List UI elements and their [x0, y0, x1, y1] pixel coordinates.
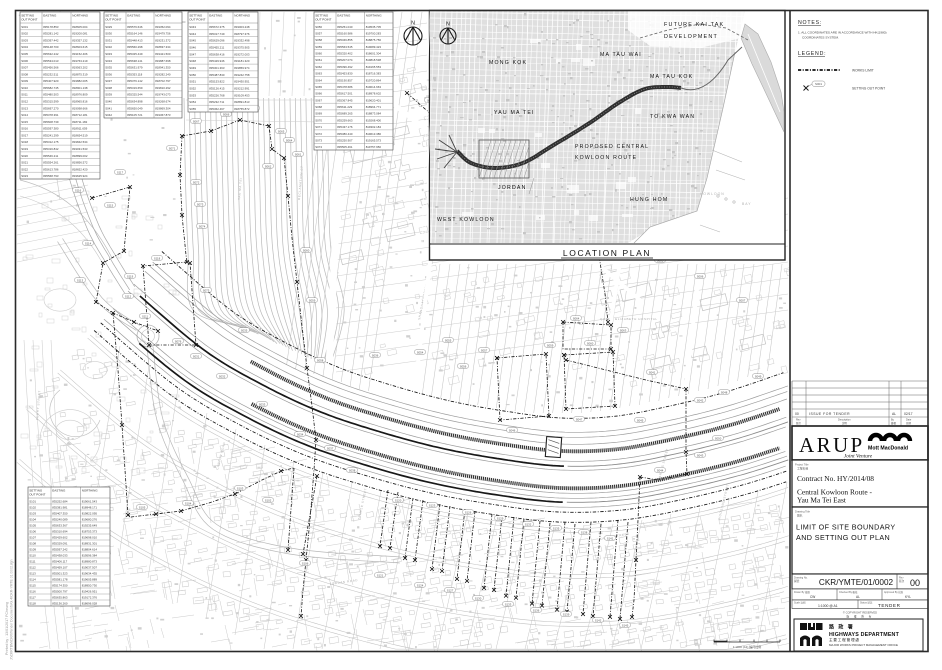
svg-text:COORDINATES SYSTEM.: COORDINATES SYSTEM.: [802, 36, 839, 40]
svg-text:S050: S050: [715, 436, 722, 440]
svg-text:1:1000 (A1) 縮尺比例: 1:1000 (A1) 縮尺比例: [733, 644, 762, 649]
svg-text:819680.276: 819680.276: [82, 517, 98, 521]
svg-text:819357.132: 819357.132: [72, 38, 88, 42]
svg-text:S007: S007: [21, 66, 28, 70]
svg-text:S044: S044: [657, 468, 664, 472]
svg-text:S136: S136: [533, 608, 540, 612]
svg-text:PROPOSED CENTRAL: PROPOSED CENTRAL: [575, 144, 649, 150]
svg-text:S126: S126: [465, 510, 472, 514]
svg-text:版次: 版次: [899, 579, 905, 583]
svg-text:835597.380: 835597.380: [43, 127, 59, 131]
svg-text:JORDAN: JORDAN: [498, 185, 527, 191]
svg-text:S049: S049: [189, 66, 196, 70]
svg-text:818901.138: 818901.138: [72, 86, 88, 90]
svg-text:S036: S036: [105, 72, 112, 76]
svg-text:圖號: 圖號: [794, 579, 800, 583]
svg-text:835438.033: 835438.033: [52, 553, 68, 557]
svg-text:S124: S124: [417, 583, 424, 587]
svg-text:819212.991: 819212.991: [234, 87, 250, 91]
svg-text:S035: S035: [105, 66, 112, 70]
svg-text:818899.002: 818899.002: [72, 154, 88, 158]
svg-text:819268.400: 819268.400: [366, 118, 382, 122]
svg-text:835632.242: 835632.242: [43, 52, 59, 56]
svg-text:S006: S006: [21, 59, 28, 63]
svg-text:S009: S009: [21, 79, 28, 83]
svg-text:S015: S015: [21, 120, 28, 124]
svg-text:835329.091: 835329.091: [52, 541, 68, 545]
svg-text:S135: S135: [553, 526, 560, 530]
svg-text:835250.907: 835250.907: [337, 138, 353, 142]
svg-text:S037: S037: [105, 79, 112, 83]
svg-text:S013: S013: [21, 106, 28, 110]
svg-text:S053: S053: [189, 93, 196, 97]
svg-text:S006: S006: [697, 274, 704, 278]
svg-text:S115: S115: [29, 583, 36, 587]
svg-text:S120: S120: [395, 498, 402, 502]
svg-text:OUT POINT: OUT POINT: [29, 493, 45, 497]
svg-text:835500.797: 835500.797: [52, 589, 68, 593]
svg-text:S048: S048: [189, 59, 196, 63]
svg-text:835301.363: 835301.363: [209, 66, 225, 70]
svg-text:835638.141: 835638.141: [127, 59, 143, 63]
svg-text:S020: S020: [21, 154, 28, 158]
svg-text:835353.118: 835353.118: [127, 72, 142, 76]
svg-text:819810.292: 819810.292: [155, 86, 171, 90]
svg-text:835501.323: 835501.323: [52, 571, 68, 575]
svg-text:819272.003: 819272.003: [234, 52, 250, 56]
svg-text:Mott MacDonald: Mott MacDonald: [868, 446, 908, 452]
svg-text:CW: CW: [810, 595, 815, 599]
svg-text:S054: S054: [189, 100, 196, 104]
svg-text:N: N: [446, 22, 450, 28]
svg-text:S060: S060: [587, 341, 594, 345]
svg-text:S072: S072: [315, 132, 322, 136]
svg-text:DEVELOPMENT: DEVELOPMENT: [664, 34, 718, 40]
svg-text:S032: S032: [105, 45, 112, 49]
svg-text:S115: S115: [107, 203, 114, 207]
svg-text:S057: S057: [315, 32, 322, 36]
svg-text:835505.461: 835505.461: [337, 145, 353, 149]
svg-text:S066: S066: [315, 92, 322, 96]
svg-text:818755.872: 818755.872: [234, 107, 250, 111]
svg-text:819625.924: 819625.924: [72, 174, 88, 178]
svg-text:S061: S061: [315, 58, 322, 62]
svg-text:S112: S112: [29, 565, 36, 569]
svg-text:819332.498: 819332.498: [234, 39, 250, 43]
svg-text:819375.905: 819375.905: [234, 46, 250, 50]
svg-text:S067: S067: [193, 119, 200, 123]
svg-text:818804.614: 818804.614: [82, 547, 98, 551]
svg-text:835563.545: 835563.545: [337, 45, 353, 49]
svg-text:S116: S116: [75, 188, 82, 192]
svg-text:835689.265: 835689.265: [337, 112, 353, 116]
svg-text:835456.566: 835456.566: [43, 66, 59, 70]
svg-text:S010: S010: [21, 86, 28, 90]
svg-text:835315.599: 835315.599: [43, 100, 59, 104]
svg-text:Checked By 覆核: Checked By 覆核: [839, 590, 858, 594]
svg-text:日期: 日期: [906, 421, 912, 425]
svg-text:835554.261: 835554.261: [43, 161, 59, 165]
svg-text:NORTHING: NORTHING: [234, 13, 251, 17]
svg-text:版 權 所 有: 版 權 所 有: [847, 615, 874, 619]
svg-text:819596.384: 819596.384: [82, 553, 98, 557]
svg-text:CKR/YMTE/01/0002: CKR/YMTE/01/0002: [819, 578, 894, 587]
svg-text:819698.010: 819698.010: [82, 535, 98, 539]
svg-text:S001: S001: [21, 25, 28, 29]
svg-text:S066: S066: [223, 112, 230, 116]
svg-text:819109.453: 819109.453: [234, 93, 250, 97]
svg-text:818911.659: 818911.659: [72, 127, 87, 131]
svg-text:SETTING OUT POINT: SETTING OUT POINT: [852, 87, 885, 91]
svg-text:835259.663: 835259.663: [337, 118, 353, 122]
svg-text:819842.534: 819842.534: [72, 140, 88, 144]
svg-text:835650.049: 835650.049: [127, 106, 143, 110]
svg-text:835190.857: 835190.857: [337, 78, 353, 82]
svg-text:835631.979: 835631.979: [127, 66, 143, 70]
svg-text:819098.666: 819098.666: [72, 106, 88, 110]
svg-text:S065: S065: [278, 129, 285, 133]
svg-text:AND SETTING OUT PLAN: AND SETTING OUT PLAN: [796, 533, 890, 542]
svg-text:S063: S063: [315, 72, 322, 76]
svg-text:主要工程管理處: 主要工程管理處: [829, 637, 860, 642]
svg-text:S056: S056: [315, 25, 322, 29]
svg-text:S041: S041: [105, 106, 112, 110]
svg-text:NOTES:: NOTES:: [798, 20, 822, 26]
svg-text:AL: AL: [892, 412, 896, 416]
svg-text:S075: S075: [203, 288, 210, 292]
svg-text:S052: S052: [189, 87, 196, 91]
svg-text:S114: S114: [85, 241, 92, 245]
svg-text:818601.304: 818601.304: [366, 52, 382, 56]
svg-text:835325.449: 835325.449: [127, 52, 143, 56]
svg-text:S103: S103: [237, 486, 244, 490]
svg-text:S031: S031: [193, 354, 200, 358]
svg-text:LOCATION PLAN: LOCATION PLAN: [563, 248, 651, 258]
svg-text:835635.863: 835635.863: [52, 595, 68, 599]
svg-text:S019: S019: [21, 147, 28, 151]
svg-text:835633.367: 835633.367: [52, 523, 68, 527]
svg-text:S114: S114: [29, 577, 36, 581]
svg-text:835437.176: 835437.176: [337, 125, 353, 129]
svg-text:EASTING: EASTING: [43, 13, 57, 17]
svg-text:S016: S016: [21, 127, 28, 131]
svg-text:835611.229: 835611.229: [337, 105, 352, 109]
svg-text:S046: S046: [189, 46, 196, 50]
svg-text:MA TAU WAI: MA TAU WAI: [600, 52, 642, 58]
svg-text:835534.013: 835534.013: [43, 59, 59, 63]
svg-text:S104: S104: [185, 501, 192, 505]
svg-text:819634.435: 819634.435: [82, 571, 98, 575]
svg-text:MA TAU KOK: MA TAU KOK: [650, 74, 693, 80]
svg-text:835232.711: 835232.711: [209, 100, 224, 104]
svg-text:S059: S059: [309, 298, 316, 302]
svg-text:S047: S047: [576, 417, 583, 421]
svg-text:S049: S049: [755, 374, 762, 378]
svg-text:819605.889: 819605.889: [82, 577, 98, 581]
svg-text:EASTING: EASTING: [337, 13, 351, 17]
svg-text:819302.184: 819302.184: [366, 125, 382, 129]
svg-text:S072: S072: [193, 180, 200, 184]
svg-text:819089.423: 819089.423: [366, 45, 382, 49]
svg-text:WORKS LIMIT: WORKS LIMIT: [852, 69, 874, 73]
svg-text:S132: S132: [525, 522, 532, 526]
svg-text:S063: S063: [620, 328, 627, 332]
svg-text:819200.081: 819200.081: [72, 32, 88, 36]
svg-text:Joint Venture: Joint Venture: [844, 454, 873, 460]
svg-text:S033: S033: [259, 402, 266, 406]
svg-text:LEGEND:: LEGEND:: [798, 51, 826, 57]
svg-text:S060: S060: [315, 52, 322, 56]
svg-text:835251.040: 835251.040: [337, 25, 353, 29]
svg-text:835597.242: 835597.242: [52, 547, 68, 551]
svg-text:818716.383: 818716.383: [366, 72, 382, 76]
svg-text:819037.507: 819037.507: [82, 565, 98, 569]
svg-text:819014.663: 819014.663: [366, 85, 382, 89]
svg-text:S051: S051: [189, 80, 196, 84]
svg-text:818712.181: 818712.181: [72, 113, 88, 117]
svg-text:S003: S003: [21, 38, 28, 42]
svg-text:835148.700: 835148.700: [43, 45, 59, 49]
svg-text:819479.756: 819479.756: [155, 32, 171, 36]
svg-text:835397.442: 835397.442: [43, 38, 59, 42]
svg-text:835320.402: 835320.402: [337, 52, 353, 56]
svg-text:FUTURE KAI TAK: FUTURE KAI TAK: [664, 22, 724, 28]
svg-text:819426.951: 819426.951: [82, 589, 98, 593]
svg-text:819818.538: 819818.538: [366, 58, 382, 62]
svg-text:S050: S050: [189, 73, 196, 77]
svg-text:819700.283: 819700.283: [366, 32, 382, 36]
svg-text:835164.146: 835164.146: [127, 32, 143, 36]
svg-text:S038: S038: [105, 86, 112, 90]
svg-text:818605.004: 818605.004: [72, 25, 88, 29]
svg-text:S069: S069: [315, 112, 322, 116]
svg-text:818652.420: 818652.420: [72, 167, 88, 171]
svg-text:818976.809: 818976.809: [72, 93, 88, 97]
svg-text:KOWLOON ROUTE: KOWLOON ROUTE: [575, 155, 637, 161]
svg-text:YAU MA TEI: YAU MA TEI: [494, 110, 535, 116]
svg-text:S034: S034: [105, 59, 112, 63]
svg-text:S021: S021: [21, 161, 28, 165]
svg-text:835226.768: 835226.768: [209, 93, 225, 97]
svg-text:S106: S106: [302, 561, 309, 565]
svg-text:835346.855: 835346.855: [337, 38, 353, 42]
svg-text:819859.974: 819859.974: [234, 66, 250, 70]
svg-text:835608.739: 835608.739: [43, 120, 59, 124]
svg-text:819031.533: 819031.533: [72, 147, 88, 151]
svg-text:S109: S109: [29, 547, 36, 551]
svg-text:835252.684: 835252.684: [52, 499, 68, 503]
svg-text:ISSUE FOR TENDER: ISSUE FOR TENDER: [809, 412, 850, 416]
svg-text:819172.376: 819172.376: [82, 595, 98, 599]
svg-text:835697.270: 835697.270: [43, 106, 59, 110]
svg-text:S001: S001: [815, 82, 822, 86]
svg-text:835406.117: 835406.117: [52, 559, 67, 563]
svg-text:819268.674: 819268.674: [155, 100, 171, 104]
svg-text:S031: S031: [105, 39, 112, 43]
svg-text:S101: S101: [29, 499, 36, 503]
svg-text:S042: S042: [697, 398, 704, 402]
svg-text:818948.171: 818948.171: [82, 505, 98, 509]
svg-text:S034: S034: [297, 432, 304, 436]
svg-text:S064: S064: [573, 316, 580, 320]
svg-text:819887.698: 819887.698: [155, 59, 171, 63]
svg-text:818931.301: 818931.301: [82, 541, 98, 545]
svg-text:S111: S111: [142, 314, 149, 318]
svg-text:818941.350: 818941.350: [155, 66, 171, 70]
svg-text:835672.375: 835672.375: [209, 25, 225, 29]
svg-text:818603.615: 818603.615: [72, 45, 88, 49]
svg-text:S113: S113: [29, 571, 36, 575]
svg-text:S108: S108: [29, 541, 36, 545]
svg-text:S058: S058: [317, 358, 324, 362]
svg-text:S138: S138: [581, 530, 588, 534]
svg-text:818964.771: 818964.771: [366, 105, 382, 109]
svg-text:S060: S060: [303, 248, 310, 252]
svg-text:835546.211: 835546.211: [43, 154, 58, 158]
svg-text:S061: S061: [295, 152, 302, 156]
svg-text:835459.107: 835459.107: [52, 565, 68, 569]
svg-text:835362.467: 835362.467: [209, 107, 225, 111]
svg-text:835682.745: 835682.745: [43, 86, 59, 90]
svg-text:818696.028: 818696.028: [82, 601, 98, 605]
svg-text:818702.797: 818702.797: [155, 79, 171, 83]
svg-text:Contract No. HY/2014/08: Contract No. HY/2014/08: [797, 474, 874, 483]
svg-text:Drawn By 繪圖: Drawn By 繪圖: [794, 590, 810, 594]
svg-text:LIMIT OF SITE BOUNDARY: LIMIT OF SITE BOUNDARY: [796, 523, 896, 532]
svg-text:835487.830: 835487.830: [209, 73, 225, 77]
svg-text:835568.793: 835568.793: [43, 174, 59, 178]
svg-text:02/17: 02/17: [904, 412, 913, 416]
svg-text:818875.319: 818875.319: [72, 72, 88, 76]
svg-text:KYL: KYL: [905, 595, 911, 599]
svg-text:835378.391: 835378.391: [43, 113, 59, 117]
svg-text:818978.602: 818978.602: [366, 92, 382, 96]
svg-text:S104: S104: [29, 517, 36, 521]
svg-text:819763.219: 819763.219: [72, 59, 88, 63]
svg-text:AL: AL: [856, 595, 860, 599]
svg-text:HUNG HOM: HUNG HOM: [630, 197, 668, 203]
svg-text:S045: S045: [189, 39, 196, 43]
svg-text:S055: S055: [189, 107, 196, 111]
svg-text:819882.005: 819882.005: [72, 79, 88, 83]
svg-text:S054: S054: [417, 350, 424, 354]
svg-text:835613.786: 835613.786: [43, 167, 59, 171]
svg-text:818891.813: 818891.813: [234, 100, 250, 104]
svg-text:S017: S017: [21, 133, 28, 137]
svg-text:835453.830: 835453.830: [337, 72, 353, 76]
svg-text:835478.686: 835478.686: [337, 85, 353, 89]
svg-text:S064: S064: [286, 138, 293, 142]
svg-text:835310.694: 835310.694: [52, 529, 68, 533]
svg-text:835380.440: 835380.440: [337, 132, 353, 136]
svg-text:835281.142: 835281.142: [43, 32, 59, 36]
svg-text:S046: S046: [509, 428, 516, 432]
svg-text:Approved By 批准: Approved By 批准: [884, 590, 904, 594]
svg-text:835136.260: 835136.260: [52, 601, 68, 605]
svg-text:S110: S110: [29, 553, 36, 557]
svg-text:819352.094: 819352.094: [155, 25, 171, 29]
svg-text:S106: S106: [29, 529, 36, 533]
svg-text:NORTHING: NORTHING: [155, 13, 172, 17]
svg-text:819620.401: 819620.401: [366, 98, 382, 102]
svg-text:說明: 說明: [842, 421, 848, 425]
svg-text:S041: S041: [649, 370, 656, 374]
svg-text:819743.073: 819743.073: [155, 93, 171, 97]
svg-text:819231.372: 819231.372: [155, 39, 171, 43]
svg-text:835381.981: 835381.981: [52, 505, 68, 509]
svg-text:1. ALL COORDINATES ARE IN ACCO: 1. ALL COORDINATES ARE IN ACCORDANCE WIT…: [798, 31, 887, 35]
svg-text:S107: S107: [29, 535, 36, 539]
svg-text:S047: S047: [189, 52, 196, 56]
svg-text:00: 00: [910, 578, 920, 588]
svg-text:TENDER: TENDER: [878, 603, 901, 608]
svg-text:S111: S111: [29, 559, 36, 563]
svg-text:S105: S105: [139, 505, 146, 509]
svg-text:819822.095: 819822.095: [82, 511, 98, 515]
svg-text:S073: S073: [197, 202, 204, 206]
svg-text:S070: S070: [315, 118, 322, 122]
svg-text:S033: S033: [105, 52, 112, 56]
svg-text:835312.175: 835312.175: [43, 140, 59, 144]
svg-text:S007: S007: [739, 298, 746, 302]
svg-text:OUT POINT: OUT POINT: [189, 18, 205, 22]
svg-text:835429.946: 835429.946: [209, 59, 225, 63]
svg-text:S004: S004: [21, 45, 28, 49]
svg-text:819856.572: 819856.572: [72, 161, 88, 165]
svg-text:簽署: 簽署: [891, 421, 897, 425]
svg-text:819613.386: 819613.386: [366, 132, 382, 136]
svg-text:835576.646: 835576.646: [127, 25, 143, 29]
svg-text:S030: S030: [105, 32, 112, 36]
svg-text:S119: S119: [127, 274, 134, 278]
svg-text:818711.182: 818711.182: [72, 120, 87, 124]
svg-text:S113: S113: [77, 278, 84, 282]
svg-text:S035: S035: [241, 328, 248, 332]
svg-text:S043: S043: [189, 25, 196, 29]
svg-text:835629.096: 835629.096: [209, 39, 225, 43]
svg-text:S062: S062: [265, 164, 272, 168]
svg-text:S068: S068: [315, 105, 322, 109]
svg-text:S118: S118: [154, 256, 161, 260]
svg-text:818875.756: 818875.756: [366, 38, 382, 42]
svg-text:819282.240: 819282.240: [155, 72, 171, 76]
svg-text:819003.248: 819003.248: [234, 25, 250, 29]
svg-text:S042: S042: [105, 113, 112, 117]
svg-text:819430.951: 819430.951: [234, 80, 250, 84]
svg-text:S129: S129: [497, 516, 504, 520]
svg-text:S014: S014: [21, 113, 28, 117]
svg-text:835638.416: 835638.416: [209, 52, 225, 56]
svg-text:S064: S064: [315, 78, 322, 82]
svg-text:S117: S117: [29, 595, 36, 599]
svg-text:819165.573: 819165.573: [366, 138, 382, 142]
svg-text:835319.659: 835319.659: [127, 86, 143, 90]
svg-text:TO KWA WAN: TO KWA WAN: [650, 114, 695, 120]
svg-text:版次: 版次: [796, 421, 802, 425]
svg-text:835634.898: 835634.898: [127, 100, 143, 104]
svg-text:818654.519: 818654.519: [72, 133, 88, 137]
svg-text:OUT POINT: OUT POINT: [105, 18, 121, 22]
svg-text:819421.500: 819421.500: [155, 52, 171, 56]
svg-text:819235.649: 819235.649: [82, 523, 98, 527]
svg-text:S105: S105: [29, 523, 36, 527]
svg-text:KOWLOON: KOWLOON: [700, 192, 725, 196]
svg-text:S045: S045: [637, 418, 644, 422]
svg-text:S065: S065: [315, 85, 322, 89]
svg-text:S055: S055: [445, 338, 452, 342]
svg-text:Status 狀況: Status 狀況: [860, 600, 873, 604]
svg-text:S102: S102: [265, 498, 272, 502]
